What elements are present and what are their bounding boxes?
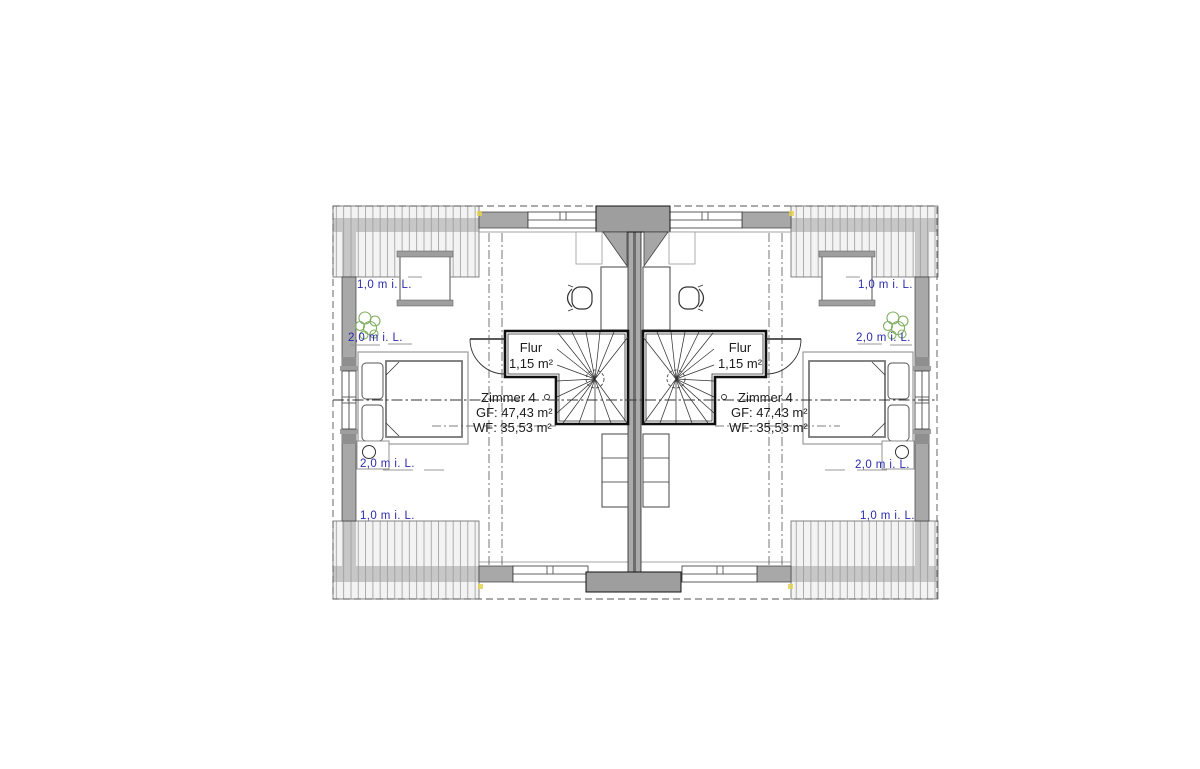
clearance-left-bottom-1m: 1,0 m i. L. bbox=[360, 510, 415, 522]
room-left-label: Zimmer 4 bbox=[481, 390, 536, 405]
room-left-gross-area: GF: 47,43 m² bbox=[476, 405, 553, 420]
desk-right bbox=[643, 267, 670, 330]
bed-left bbox=[357, 352, 468, 469]
clearance-right-bottom-2m: 2,0 m i. L. bbox=[855, 459, 910, 471]
bottom-wall-pier-right bbox=[757, 566, 791, 582]
knee-wall-left-upper bbox=[342, 277, 356, 370]
hall-right-area: 1,15 m² bbox=[718, 356, 763, 371]
roof-flue-triangle-left bbox=[603, 232, 627, 266]
pillow bbox=[362, 405, 383, 441]
lamp bbox=[896, 446, 909, 459]
clearance-right-bottom-1m: 1,0 m i. L. bbox=[860, 510, 915, 522]
clearance-left-top-2m: 2,0 m i. L. bbox=[348, 332, 403, 344]
roof-flue-triangle-right bbox=[644, 232, 668, 266]
clearance-left-top-1m: 1,0 m i. L. bbox=[357, 279, 412, 291]
clearance-right-top-1m: 1,0 m i. L. bbox=[858, 279, 913, 291]
shelf-right bbox=[643, 434, 669, 507]
hall-left-label: Flur bbox=[520, 340, 543, 355]
window-top-left bbox=[528, 212, 598, 228]
door-left bbox=[470, 339, 505, 374]
shelf-left bbox=[602, 434, 628, 507]
room-right-label: Zimmer 4 bbox=[738, 390, 793, 405]
door-stop-left bbox=[545, 395, 550, 400]
floor-plan-canvas: Flur 1,15 m² Flur 1,15 m² Zimmer 4 GF: 4… bbox=[0, 0, 1200, 769]
clearance-left-bottom-2m: 2,0 m i. L. bbox=[360, 458, 415, 470]
lamp bbox=[363, 446, 376, 459]
chimney-block-bottom bbox=[586, 572, 681, 592]
door-right bbox=[766, 339, 801, 374]
pillow bbox=[888, 363, 909, 399]
bed-right bbox=[803, 352, 914, 469]
window-bottom-right bbox=[682, 566, 757, 582]
window-top-right bbox=[668, 212, 742, 228]
hall-left-area: 1,15 m² bbox=[509, 356, 554, 371]
room-right-gross-area: GF: 47,43 m² bbox=[731, 405, 808, 420]
room-left-living-area: WF: 35,53 m² bbox=[473, 420, 552, 435]
hall-right-label: Flur bbox=[729, 340, 752, 355]
top-wall-pier-left bbox=[479, 212, 528, 228]
bottom-wall-pier-left bbox=[479, 566, 513, 582]
flue-box-right bbox=[669, 232, 695, 264]
knee-wall-right-upper bbox=[915, 277, 929, 370]
pillow bbox=[888, 405, 909, 441]
clearance-right-top-2m: 2,0 m i. L. bbox=[856, 332, 911, 344]
chimney-block-top bbox=[596, 206, 670, 232]
flue-box-left bbox=[576, 232, 602, 264]
door-stop-right bbox=[722, 395, 727, 400]
room-right-living-area: WF: 35,53 m² bbox=[729, 420, 808, 435]
top-wall-pier-right bbox=[742, 212, 791, 228]
pillow bbox=[362, 363, 383, 399]
desk-chair-right bbox=[679, 285, 704, 311]
window-bottom-left bbox=[513, 566, 588, 582]
desk-chair-left bbox=[568, 285, 593, 311]
desk-left bbox=[601, 267, 628, 330]
